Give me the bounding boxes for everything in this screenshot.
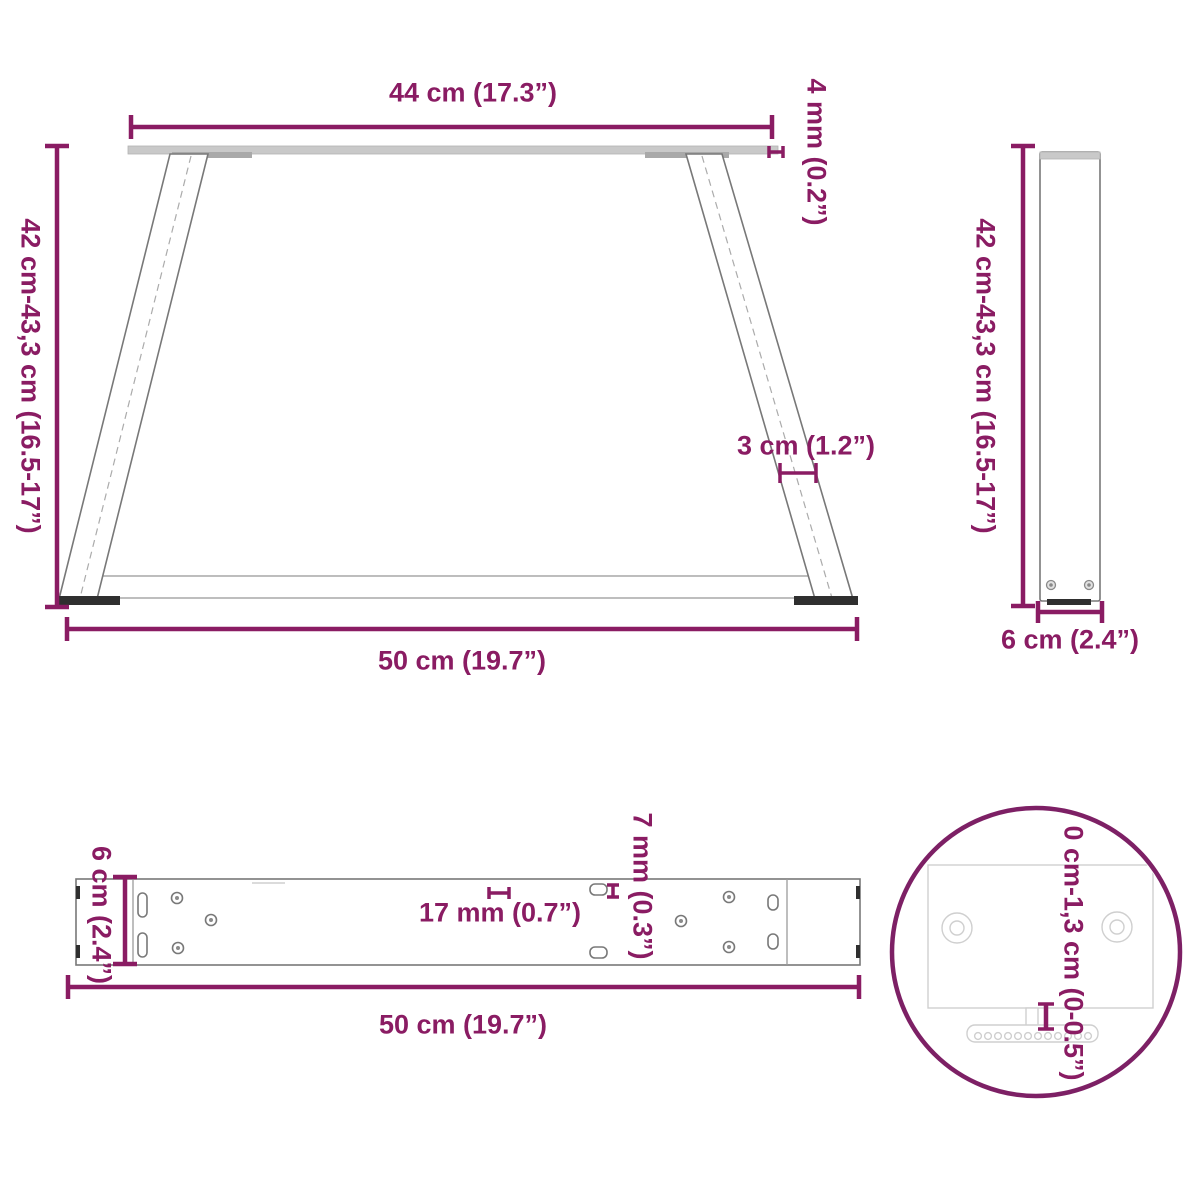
front-leg-width-label: 3 cm (1.2”)	[737, 433, 875, 460]
detail-view-drawing	[892, 808, 1180, 1096]
diagram-canvas	[0, 0, 1200, 1200]
detail-adjustment-label: 0 cm-1,3 cm (0-0.5”)	[1060, 825, 1087, 1080]
front-bottom-width-label: 50 cm (19.7”)	[378, 648, 546, 675]
side-view-drawing	[1040, 152, 1100, 605]
front-left-foot	[56, 596, 120, 605]
front-left-leg	[59, 154, 208, 599]
front-crossbar	[96, 576, 818, 598]
side-depth-label: 6 cm (2.4”)	[1001, 627, 1139, 654]
top-depth-label: 6 cm (2.4”)	[88, 846, 115, 984]
detail-leg-plate	[928, 865, 1153, 1008]
top-slot-height-label: 7 mm (0.3”)	[629, 812, 656, 959]
side-leg-body	[1040, 152, 1100, 601]
top-hole-spacing-label: 17 mm (0.7”)	[419, 900, 581, 927]
front-height-label: 42 cm-43,3 cm (16.5-17”)	[17, 218, 44, 533]
detail-foot-stem	[1026, 1008, 1038, 1026]
top-length-label: 50 cm (19.7”)	[379, 1012, 547, 1039]
dimension-diagram: 44 cm (17.3”) 4 mm (0.2”) 42 cm-43,3 cm …	[0, 0, 1200, 1200]
side-foot	[1047, 599, 1091, 605]
side-height-label: 42 cm-43,3 cm (16.5-17”)	[972, 218, 999, 533]
front-top-width-label: 44 cm (17.3”)	[389, 80, 557, 107]
front-thickness-label: 4 mm (0.2”)	[803, 78, 830, 225]
side-top-cap	[1040, 152, 1100, 159]
front-right-foot	[794, 596, 858, 605]
front-view-drawing	[56, 146, 858, 605]
